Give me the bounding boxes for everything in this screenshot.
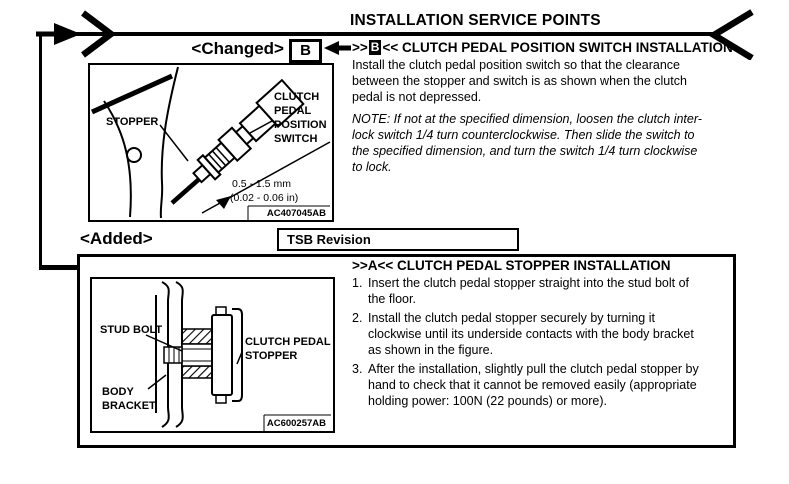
page-title: INSTALLATION SERVICE POINTS xyxy=(350,12,601,30)
header-rule xyxy=(40,32,718,36)
text-line: hand to check that it cannot be removed … xyxy=(368,377,744,393)
stopper-label-line: CLUTCH PEDAL xyxy=(245,336,331,348)
chevron-right-icon xyxy=(83,13,111,55)
stopper-steps-list: 1.Insert the clutch pedal stopper straig… xyxy=(352,275,744,412)
stopper-label: STOPPER xyxy=(106,116,158,128)
switch-label-line: SWITCH xyxy=(274,133,317,145)
bracket-label-line: BRACKET xyxy=(102,400,156,412)
stopper-tab-bottom xyxy=(216,395,226,403)
clutch-stopper-figure: STUD BOLT CLUTCH PEDAL STOPPER BODY BRAC… xyxy=(90,277,335,433)
bracket-label-line: BODY xyxy=(102,386,134,398)
text-line: pedal is not depressed. xyxy=(352,89,687,105)
changed-anchor-box: B xyxy=(289,39,322,63)
clutch-switch-section-title: CLUTCH PEDAL POSITION SWITCH INSTALLATIO… xyxy=(398,40,733,55)
step-item: 3.After the installation, slightly pull … xyxy=(352,361,744,409)
step-item: 1.Insert the clutch pedal stopper straig… xyxy=(352,275,744,307)
step-text: After the installation, slightly pull th… xyxy=(368,361,744,409)
arrow-tail xyxy=(338,46,351,51)
text-line: the floor. xyxy=(368,291,744,307)
step-text: Install the clutch pedal stopper securel… xyxy=(368,310,744,358)
clutch-switch-figure: STOPPER CLUTCH PEDAL POSITION SWITCH 0.5… xyxy=(88,63,334,222)
clutch-switch-drawing: STOPPER CLUTCH PEDAL POSITION SWITCH 0.5… xyxy=(90,65,332,220)
switch-label-line: CLUTCH xyxy=(274,91,319,103)
change-bracket-vertical-line xyxy=(39,34,42,268)
text-line: lock switch 1/4 turn counterclockwise. T… xyxy=(352,127,702,143)
clutch-stopper-drawing: STUD BOLT CLUTCH PEDAL STOPPER BODY BRAC… xyxy=(92,279,333,431)
step-number: 1. xyxy=(352,275,368,307)
dimension-mm-text: 0.5 - 1.5 mm xyxy=(232,178,291,190)
clutch-switch-body-text: Install the clutch pedal position switch… xyxy=(352,57,687,105)
arrowhead-icon xyxy=(54,23,81,45)
stopper-bracket-edge xyxy=(92,76,172,112)
clutch-switch-section-heading: >>B<< CLUTCH PEDAL POSITION SWITCH INSTA… xyxy=(352,40,733,55)
text-line: the specified dimension, and turn the sw… xyxy=(352,143,702,159)
pedal-arm-hole xyxy=(127,148,141,162)
switch-label-line: POSITION xyxy=(274,119,327,131)
change-arrow-left-icon xyxy=(36,10,116,60)
text-line: Install the clutch pedal stopper securel… xyxy=(368,310,744,326)
stopper-body xyxy=(212,315,232,395)
anchor-open: >> xyxy=(352,40,368,55)
text-line: Install the clutch pedal position switch… xyxy=(352,57,687,73)
step-number: 2. xyxy=(352,310,368,358)
stud-bolt-shaft xyxy=(182,344,212,366)
bracket-hatch-upper xyxy=(182,329,212,344)
figure-code: AC407045AB xyxy=(267,208,326,219)
pedal-arm-right-edge xyxy=(161,67,178,218)
figure-code: AC600257AB xyxy=(267,418,326,429)
added-label: <Added> xyxy=(80,229,153,249)
text-line: to lock. xyxy=(352,159,702,175)
changed-label: <Changed> xyxy=(168,39,284,59)
tsb-revision-box: TSB Revision xyxy=(277,228,519,251)
anchor-pointer-arrow-icon xyxy=(324,40,352,56)
text-line: between the stopper and switch is as sho… xyxy=(352,73,687,89)
stud-bolt-label: STUD BOLT xyxy=(100,324,162,336)
inverted-anchor-letter: B xyxy=(369,40,382,55)
step-number: 3. xyxy=(352,361,368,409)
step-text: Insert the clutch pedal stopper straight… xyxy=(368,275,744,307)
dimension-arrowhead-icon xyxy=(216,196,231,209)
anchor-close: << xyxy=(382,40,398,55)
switch-label-line: PEDAL xyxy=(274,105,312,117)
stopper-tab-top xyxy=(216,307,226,315)
bracket-hatch-lower xyxy=(182,366,212,378)
step-item: 2.Install the clutch pedal stopper secur… xyxy=(352,310,744,358)
stopper-label-line: STOPPER xyxy=(245,350,297,362)
stopper-section-heading: >>A<< CLUTCH PEDAL STOPPER INSTALLATION xyxy=(352,258,671,273)
text-line: NOTE: If not at the specified dimension,… xyxy=(352,111,702,127)
text-line: clockwise until its underside contacts w… xyxy=(368,326,744,342)
arrowhead-icon xyxy=(324,41,339,55)
text-line: After the installation, slightly pull th… xyxy=(368,361,744,377)
text-line: holding power: 100N (22 pounds) or more)… xyxy=(368,393,744,409)
text-line: as shown in the figure. xyxy=(368,342,744,358)
change-bracket-horizontal-line xyxy=(39,265,80,270)
text-line: Insert the clutch pedal stopper straight… xyxy=(368,275,744,291)
clutch-switch-note-text: NOTE: If not at the specified dimension,… xyxy=(352,111,702,175)
tsb-page: { "page": { "header": "INSTALLATION SERV… xyxy=(0,0,789,484)
dimension-in-text: (0.02 - 0.06 in) xyxy=(230,192,298,204)
